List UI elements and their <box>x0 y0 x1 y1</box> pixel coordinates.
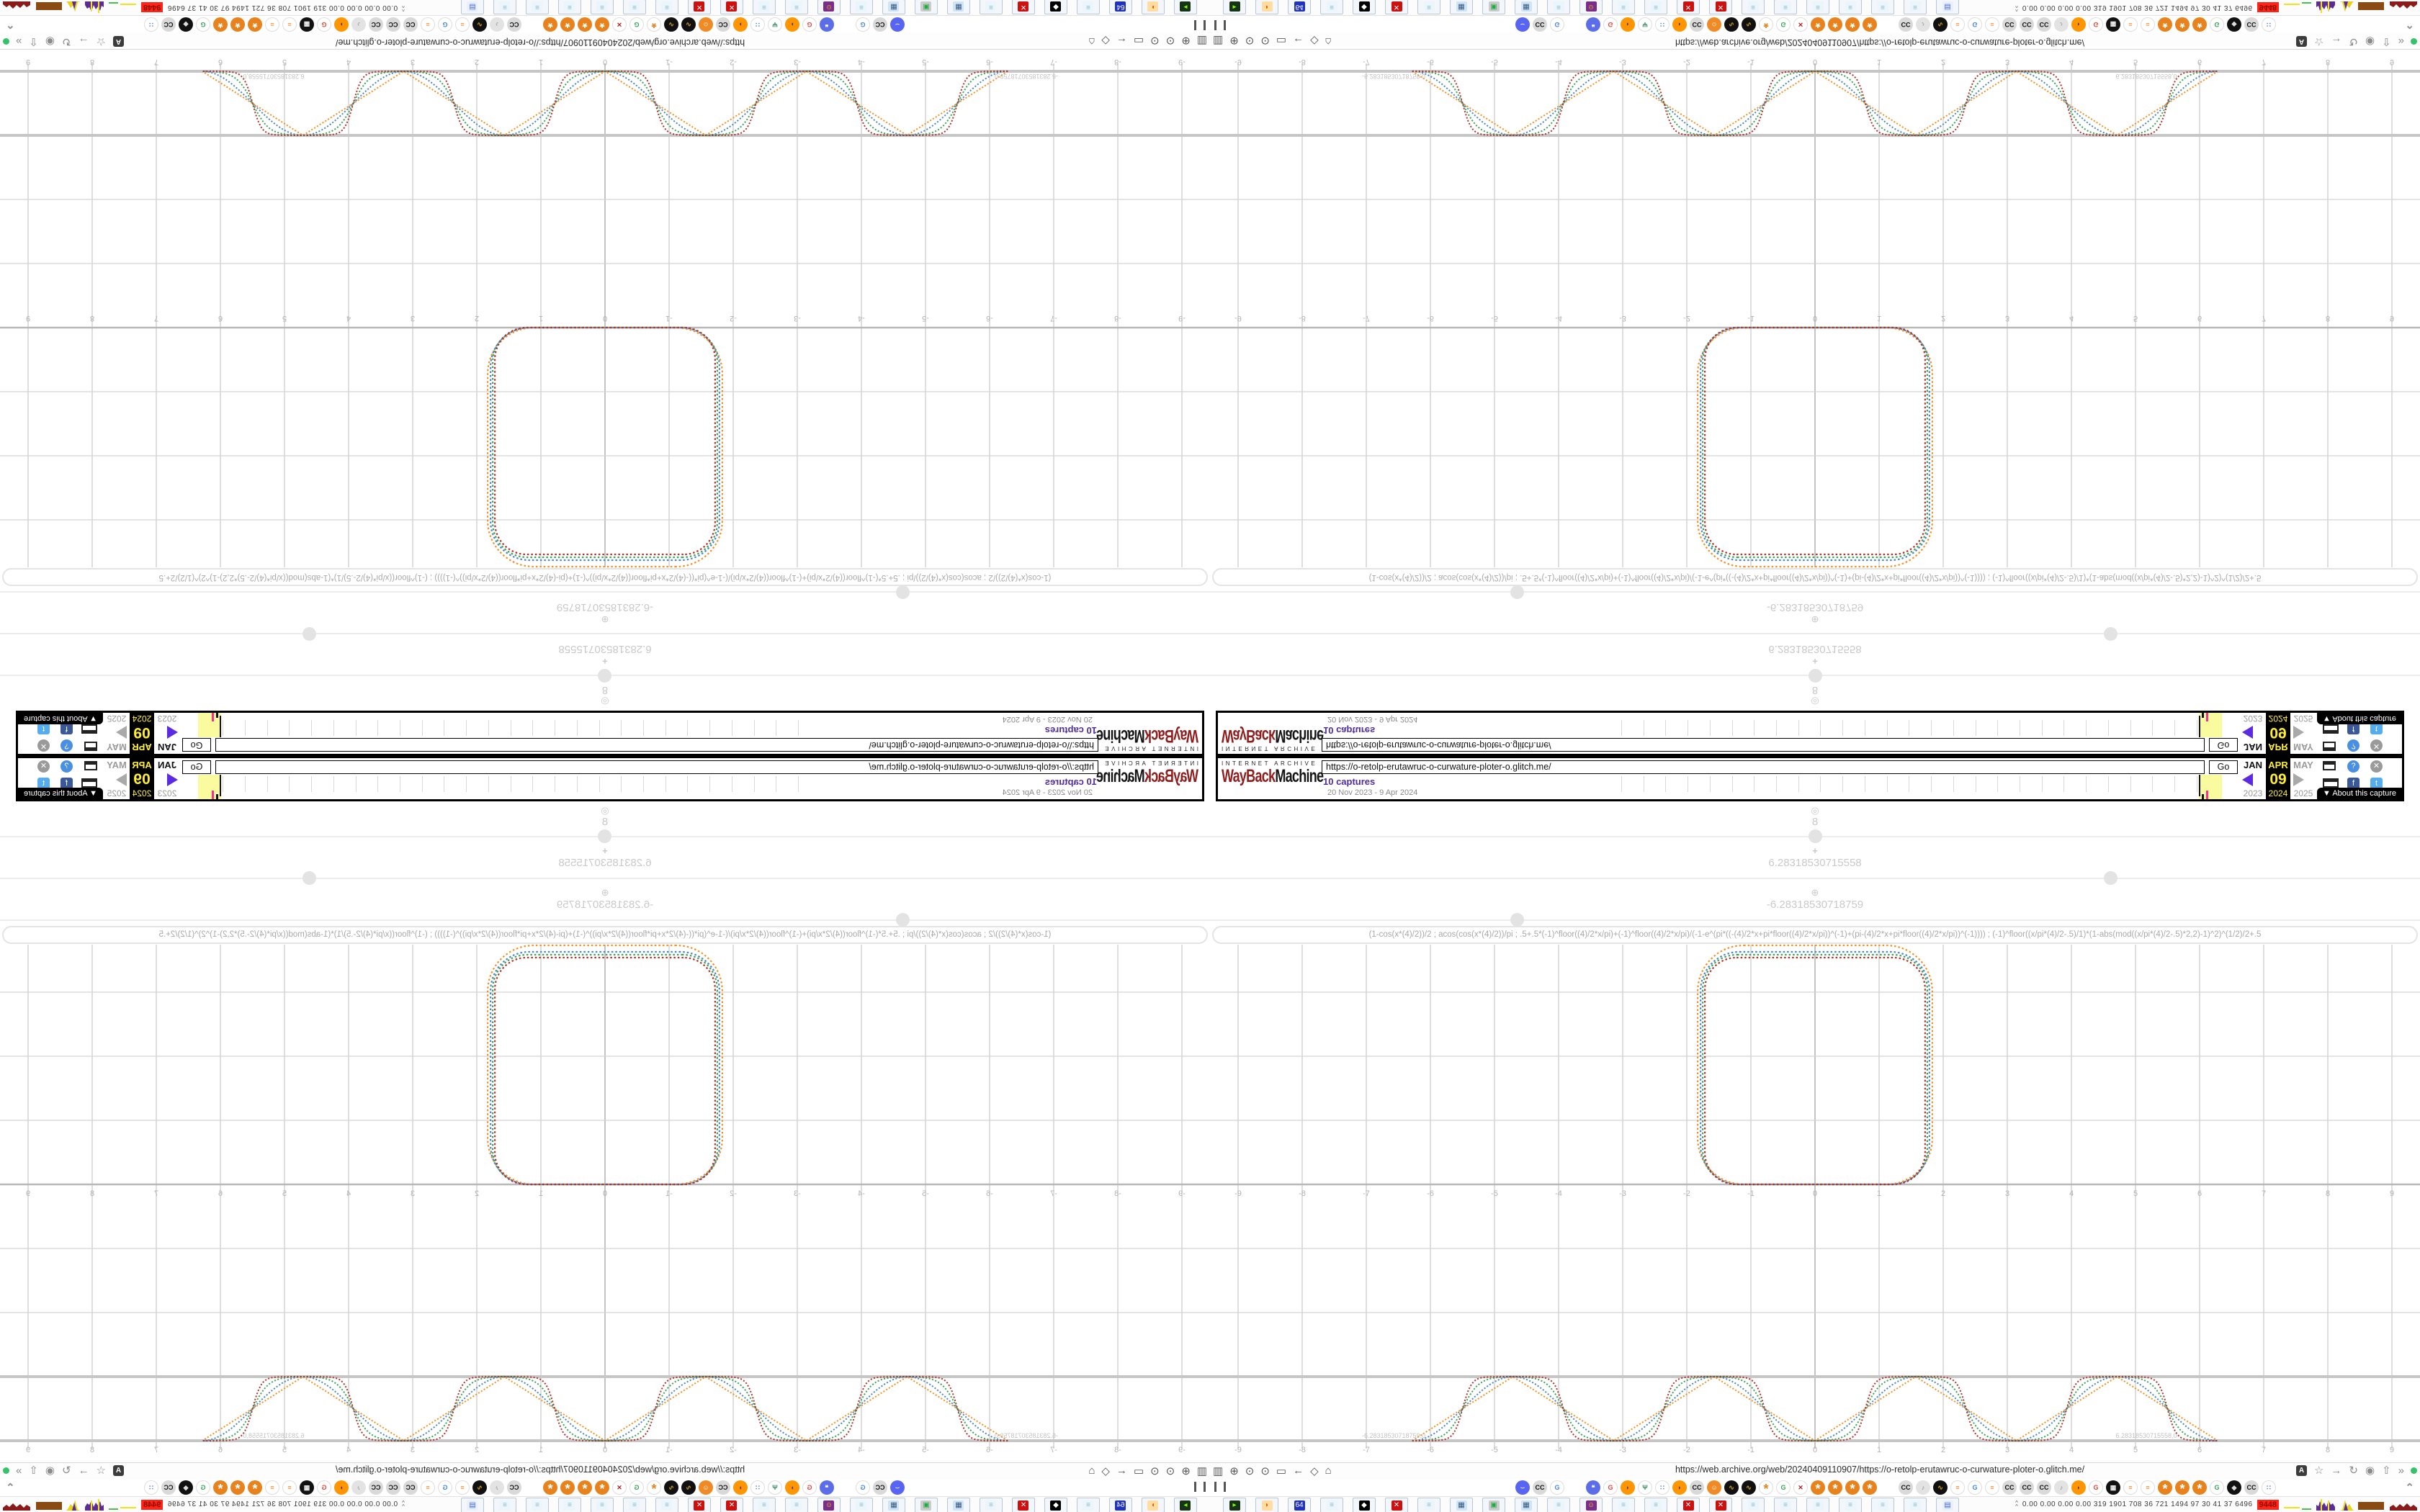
waveform-icon[interactable]: ∿ <box>1724 1480 1739 1495</box>
about-this-capture-toggle[interactable]: ▼ About this capture <box>2317 713 2402 724</box>
capture-tick[interactable] <box>289 776 290 792</box>
month-next[interactable]: MAY <box>2291 758 2316 772</box>
notepad-app[interactable]: ≡ <box>850 1498 873 1512</box>
dots-icon[interactable]: ∷ <box>1655 1480 1670 1495</box>
slider-thumb-n[interactable] <box>598 829 611 843</box>
red-gear-app[interactable]: ✕ <box>1677 1498 1700 1512</box>
capture-tick[interactable] <box>1688 720 1688 736</box>
capture-tick[interactable] <box>2042 720 2043 736</box>
notepad-app[interactable]: ≡ <box>1742 0 1765 14</box>
spider-icon[interactable]: ◆ <box>179 1480 193 1495</box>
globe-icon[interactable]: ⊕ <box>1181 1464 1191 1477</box>
cc-icon[interactable]: CC <box>507 17 521 32</box>
red-flower-icon[interactable]: ✕ <box>612 1480 627 1495</box>
capture-tick[interactable] <box>1865 776 1865 792</box>
red-gear-app[interactable]: ✕ <box>720 1498 743 1512</box>
floppy64-app[interactable]: 64 <box>1109 1498 1132 1512</box>
cc-icon[interactable]: CC <box>403 17 418 32</box>
captures-link[interactable]: 10 captures <box>1045 776 1097 787</box>
capture-tick[interactable] <box>1621 720 1622 736</box>
red-gear-app[interactable]: ✕ <box>688 0 711 14</box>
share-icon[interactable]: ⇧ <box>29 35 38 48</box>
capture-tick[interactable] <box>732 776 732 792</box>
collapse-chevron-icon[interactable]: ⌃ <box>6 1481 15 1494</box>
google-icon[interactable]: G <box>438 1480 452 1495</box>
cc-icon[interactable]: CC <box>161 17 176 32</box>
gear-sun-icon[interactable]: * <box>230 17 245 32</box>
camera-grid-icon[interactable]: ▦ <box>300 17 314 32</box>
notepad-app[interactable]: ≡ <box>623 0 646 14</box>
slider-track-xmax[interactable] <box>0 878 1210 879</box>
stackoverflow-icon[interactable]: ≡ <box>421 17 435 32</box>
screenshot-icon[interactable] <box>2323 724 2339 734</box>
gear-sun-icon[interactable]: * <box>213 1480 228 1495</box>
month-prev[interactable]: JAN <box>2241 758 2265 772</box>
next-capture-arrow[interactable] <box>2293 726 2304 739</box>
bookmark-star-icon[interactable]: ☆ <box>2314 1464 2323 1477</box>
shield-icon[interactable]: ◇ <box>1101 35 1110 48</box>
gear-sun-icon[interactable]: * <box>2192 17 2207 32</box>
go-button[interactable]: Go <box>182 760 211 774</box>
slider-track-xmax[interactable] <box>0 633 1210 634</box>
firefox-app[interactable]: ◗ <box>1142 1498 1165 1512</box>
stackoverflow-icon[interactable]: ≡ <box>455 17 470 32</box>
capture-tick[interactable] <box>577 720 578 736</box>
dots-icon[interactable]: ∷ <box>144 17 158 32</box>
waveform-icon[interactable]: ∿ <box>1742 17 1756 32</box>
monkey-app[interactable]: ☺ <box>1579 1498 1603 1512</box>
year-current[interactable]: 2024 <box>130 713 154 724</box>
gear-sun-icon[interactable]: * <box>578 1480 592 1495</box>
capture-timeline[interactable] <box>223 713 799 736</box>
waveform-icon[interactable]: ∿ <box>472 17 487 32</box>
capture-tick[interactable] <box>1953 776 1954 792</box>
calculator-app[interactable]: ▦ <box>1450 1498 1473 1512</box>
capture-tick[interactable] <box>2108 776 2109 792</box>
reload-icon[interactable]: ↻ <box>62 35 71 48</box>
red-flower-icon[interactable]: ✕ <box>612 17 627 32</box>
gauge2-icon[interactable]: ⊙ <box>1260 1464 1270 1477</box>
blackcat-app[interactable]: ◆ <box>1044 1498 1067 1512</box>
capture-tick[interactable] <box>1909 776 1909 792</box>
terminal-app[interactable]: ▸ <box>1223 1498 1246 1512</box>
wayback-logo[interactable]: INTERNET ARCHIVE WayBackMachine <box>1099 760 1198 799</box>
capture-tick[interactable] <box>1887 776 1888 792</box>
red-gear-app[interactable]: ✕ <box>1012 1498 1035 1512</box>
capture-tick[interactable] <box>1953 720 1954 736</box>
capture-tick[interactable] <box>466 720 467 736</box>
docwindow-app[interactable]: ▤ <box>461 1498 484 1512</box>
gauge2-icon[interactable]: ⊙ <box>1150 35 1160 48</box>
google-icon[interactable]: G <box>2210 17 2224 32</box>
capture-timeline-highlight[interactable] <box>198 713 221 737</box>
extension-dot-icon[interactable] <box>3 1467 9 1474</box>
capture-tick[interactable] <box>1976 776 1976 792</box>
next-capture-arrow[interactable] <box>2293 773 2304 786</box>
dots-icon[interactable]: ∷ <box>1655 17 1670 32</box>
muted-speaker-icon[interactable]: ♪ <box>351 1480 366 1495</box>
red-flower-icon[interactable]: ✕ <box>1793 17 1808 32</box>
capture-tick[interactable] <box>2130 720 2131 736</box>
globe2-icon[interactable]: ◉ <box>45 1464 55 1477</box>
xmin-value[interactable]: -6.28318530718759 <box>0 899 1210 911</box>
slider-thumb-xmin[interactable] <box>896 913 910 927</box>
extension-dot-icon[interactable] <box>2411 38 2417 45</box>
back-arrow-icon[interactable]: ← <box>1293 1464 1304 1477</box>
red-gear-app[interactable]: ✕ <box>1385 0 1408 14</box>
cc-icon[interactable]: CC <box>369 1480 383 1495</box>
capture-tick[interactable] <box>776 720 776 736</box>
capture-tick[interactable] <box>2042 776 2043 792</box>
capture-tick[interactable] <box>1798 720 1799 736</box>
cc-icon[interactable]: CC <box>716 17 730 32</box>
notepad-app[interactable]: ≡ <box>1806 1498 1829 1512</box>
capture-tick[interactable] <box>1865 720 1865 736</box>
stackoverflow-icon[interactable]: ≡ <box>265 1480 279 1495</box>
trash-icon[interactable]: ▥ <box>1213 1464 1223 1477</box>
muted-speaker-icon[interactable]: ♪ <box>2054 1480 2069 1495</box>
capture-tick[interactable] <box>466 776 467 792</box>
cc-icon[interactable]: CC <box>2020 1480 2034 1495</box>
gear-sun-icon[interactable]: * <box>1759 1480 1773 1495</box>
firefox-app[interactable]: ◗ <box>1142 0 1165 14</box>
notepad-app[interactable]: ≡ <box>1904 0 1927 14</box>
gauge-icon[interactable]: ⊙ <box>1245 35 1255 48</box>
google-icon[interactable]: G <box>196 17 210 32</box>
capture-tick[interactable] <box>511 776 511 792</box>
capture-tick[interactable] <box>1732 720 1733 736</box>
firefox-icon[interactable]: ◗ <box>1672 17 1687 32</box>
google-icon[interactable]: G <box>629 1480 644 1495</box>
bookmark-star-icon[interactable]: ☆ <box>97 35 106 48</box>
notepad-app[interactable]: ≡ <box>1774 0 1797 14</box>
collapse-chevron-icon[interactable]: ⌃ <box>2405 1481 2414 1494</box>
firefox-icon[interactable]: ◗ <box>1621 1480 1635 1495</box>
discord-icon[interactable]: ⌣ <box>1515 17 1530 32</box>
capture-tick[interactable] <box>2086 720 2087 736</box>
overflow-chevrons-icon[interactable]: » <box>2398 36 2404 48</box>
capture-tick[interactable] <box>2130 776 2131 792</box>
dots-icon[interactable]: ∷ <box>2262 1480 2276 1495</box>
notepad-app[interactable]: ≡ <box>655 0 678 14</box>
capture-timeline-highlight[interactable] <box>2199 775 2222 799</box>
google-icon[interactable]: G <box>1776 1480 1791 1495</box>
gear-sun-icon[interactable]: * <box>1811 1480 1825 1495</box>
cc-icon[interactable]: CC <box>2002 17 2017 32</box>
google-icon[interactable]: G <box>1968 17 1982 32</box>
google-icon[interactable]: G <box>802 17 817 32</box>
folder-icon[interactable]: ▭ <box>1134 35 1144 48</box>
capture-tick[interactable] <box>1754 776 1754 792</box>
notepad-app[interactable]: ≡ <box>655 1498 678 1512</box>
capture-tick[interactable] <box>643 720 644 736</box>
notepad-app[interactable]: ≡ <box>1839 1498 1862 1512</box>
capture-tick[interactable] <box>311 720 312 736</box>
share-icon[interactable]: ⇧ <box>2382 35 2391 48</box>
month-next[interactable]: MAY <box>2291 740 2316 754</box>
capture-tick[interactable] <box>643 776 644 792</box>
firefox-icon[interactable]: ◗ <box>1621 17 1635 32</box>
capture-tick[interactable] <box>2063 720 2064 736</box>
slider-thumb-n[interactable] <box>1809 669 1822 683</box>
knob-icon[interactable]: ◎ <box>0 805 1210 816</box>
gear-sun-icon[interactable]: * <box>1845 1480 1860 1495</box>
capture-tick[interactable] <box>488 720 489 736</box>
capture-tick[interactable] <box>732 720 732 736</box>
trash-icon[interactable]: ▥ <box>1197 1464 1207 1477</box>
cc-icon[interactable]: CC <box>716 1480 730 1495</box>
clown-icon[interactable]: ☺ <box>699 1480 713 1495</box>
slider-thumb-xmin[interactable] <box>896 585 910 599</box>
camera-grid-icon[interactable]: ▦ <box>300 1480 314 1495</box>
firefox-icon[interactable]: ◗ <box>733 1480 748 1495</box>
capture-timeline-highlight[interactable] <box>198 775 221 799</box>
wayback-url-input[interactable]: https://o-retolp-erutawruc-o-curwature-p… <box>215 760 1098 774</box>
bookmark-star-icon[interactable]: ☆ <box>97 1464 106 1477</box>
gear-sun-icon[interactable]: * <box>543 1480 557 1495</box>
folder-icon[interactable]: ▭ <box>1276 1464 1286 1477</box>
capture-tick[interactable] <box>444 776 445 792</box>
capture-tick[interactable] <box>665 776 666 792</box>
move-icon[interactable]: + <box>0 656 1210 667</box>
red-gear-app[interactable]: ✕ <box>1385 1498 1408 1512</box>
capture-day[interactable]: 09 <box>2266 770 2290 789</box>
notepad-app[interactable]: ≡ <box>1077 0 1100 14</box>
firefox-icon[interactable]: ◗ <box>334 17 349 32</box>
slider-track-xmin[interactable] <box>0 919 1210 921</box>
muted-speaker-icon[interactable]: ♪ <box>490 17 504 32</box>
tray-chevron-icon[interactable]: ^^ <box>2015 4 2018 12</box>
firefox-icon[interactable]: ◗ <box>785 17 799 32</box>
collapse-chevron-icon[interactable]: ⌃ <box>2405 18 2414 31</box>
red-gear-app[interactable]: ✕ <box>720 0 743 14</box>
notepad-app[interactable]: ≡ <box>785 0 808 14</box>
google-icon[interactable]: G <box>802 1480 817 1495</box>
notepad-app[interactable]: ≡ <box>591 1498 614 1512</box>
formula-input[interactable]: (1-cos(x*(4)/2))/2 ; acos(cos(x*(4)/2))/… <box>1212 926 2418 944</box>
cc-icon[interactable]: CC <box>2037 17 2051 32</box>
month-current[interactable]: APR <box>130 740 154 754</box>
param-n-value[interactable]: 8 <box>0 684 1210 696</box>
waveform-icon[interactable]: ∿ <box>1933 1480 1948 1495</box>
capture-tick[interactable] <box>1798 776 1799 792</box>
capture-tick[interactable] <box>2174 720 2175 736</box>
capture-tick[interactable] <box>1688 776 1688 792</box>
notepad-app[interactable]: ≡ <box>526 0 549 14</box>
close-banner-icon[interactable]: ✕ <box>37 739 50 752</box>
globe-icon[interactable]: ⊕ <box>1229 35 1239 48</box>
lock-icon[interactable]: ⌂ <box>1325 1464 1332 1477</box>
address-bar[interactable]: https://web.archive.org/web/202404091109… <box>1520 37 2240 48</box>
month-prev[interactable]: JAN <box>2241 740 2265 754</box>
firefox-icon[interactable]: ◗ <box>334 1480 349 1495</box>
year-prev[interactable]: 2023 <box>155 788 179 799</box>
terminal-app[interactable]: ▸ <box>1223 0 1246 14</box>
formula-input[interactable]: (1-cos(x*(4)/2))/2 ; acos(cos(x*(4)/2))/… <box>1212 568 2418 586</box>
capture-tick[interactable] <box>2086 776 2087 792</box>
gear-sun-icon[interactable]: * <box>1845 17 1860 32</box>
firefox-icon[interactable]: ◗ <box>785 1480 799 1495</box>
waveform-icon[interactable]: ∿ <box>664 1480 678 1495</box>
gear-sun-icon[interactable]: * <box>595 1480 609 1495</box>
firefox-icon[interactable]: ◗ <box>1672 1480 1687 1495</box>
notepad-app[interactable]: ≡ <box>1417 1498 1440 1512</box>
capture-tick[interactable] <box>776 776 776 792</box>
capture-tick[interactable] <box>2020 720 2020 736</box>
forward-arrow-icon[interactable]: → <box>2331 36 2341 48</box>
gauge-icon[interactable]: ⊙ <box>1166 35 1175 48</box>
capture-tick[interactable] <box>687 720 688 736</box>
address-bar[interactable]: https://web.archive.org/web/202404091109… <box>1520 1464 2240 1475</box>
stackoverflow-icon[interactable]: ≡ <box>1950 17 1965 32</box>
translate-icon[interactable]: A <box>113 1465 124 1476</box>
capture-tick[interactable] <box>400 776 400 792</box>
muted-speaker-icon[interactable]: ♪ <box>1916 17 1930 32</box>
shift-icon[interactable]: ⊕ <box>1210 613 2420 625</box>
monkey-app[interactable]: ☺ <box>817 1498 841 1512</box>
google-icon[interactable]: G <box>196 1480 210 1495</box>
capture-tick[interactable] <box>1842 776 1843 792</box>
captures-link[interactable]: 10 captures <box>1323 776 1375 787</box>
gear-sun-icon[interactable]: * <box>213 17 228 32</box>
capture-tick[interactable] <box>1665 720 1666 736</box>
collapse-chevron-icon[interactable]: ⌃ <box>6 18 15 31</box>
notepad-app[interactable]: ≡ <box>1871 0 1894 14</box>
capture-tick[interactable] <box>798 776 799 792</box>
notepad-app[interactable]: ≡ <box>785 1498 808 1512</box>
notepad-app[interactable]: ≡ <box>1774 1498 1797 1512</box>
red-gear-app[interactable]: ✕ <box>1012 0 1035 14</box>
year-next[interactable]: 2025 <box>104 788 129 799</box>
back-arrow-icon[interactable]: ← <box>1116 35 1127 48</box>
google-icon[interactable]: G <box>1550 1480 1564 1495</box>
floppy64-app[interactable]: 64 <box>1109 0 1132 14</box>
capture-tick[interactable] <box>798 720 799 736</box>
stackoverflow-icon[interactable]: ≡ <box>455 1480 470 1495</box>
stackoverflow-icon[interactable]: ≡ <box>2141 1480 2155 1495</box>
xmax-value[interactable]: 6.28318530715558 <box>0 857 1210 869</box>
prev-capture-arrow[interactable] <box>2242 726 2253 739</box>
dots-icon[interactable]: ∷ <box>144 1480 158 1495</box>
capture-tick[interactable] <box>356 776 357 792</box>
capture-tick[interactable] <box>1776 776 1777 792</box>
capture-tick[interactable] <box>555 776 555 792</box>
globe2-icon[interactable]: ◉ <box>2365 1464 2375 1477</box>
next-capture-arrow[interactable] <box>116 773 127 786</box>
cc-icon[interactable]: CC <box>403 1480 418 1495</box>
capture-tick[interactable] <box>1887 720 1888 736</box>
extension-dot-icon[interactable] <box>3 38 9 45</box>
xmax-value[interactable]: 6.28318530715558 <box>0 643 1210 655</box>
cc-icon[interactable]: CC <box>873 1480 887 1495</box>
back-arrow-icon[interactable]: ← <box>1116 1464 1127 1477</box>
notepad-app[interactable]: ≡ <box>980 1498 1003 1512</box>
gauge2-icon[interactable]: ⊙ <box>1150 1464 1160 1477</box>
year-current[interactable]: 2024 <box>2266 788 2290 799</box>
captures-link[interactable]: 10 captures <box>1045 725 1097 736</box>
cc-icon[interactable]: CC <box>386 1480 400 1495</box>
notepad-app[interactable]: ≡ <box>1077 1498 1100 1512</box>
google-icon[interactable]: G <box>2210 1480 2224 1495</box>
capture-timeline[interactable] <box>1621 713 2197 736</box>
google-icon[interactable]: G <box>856 17 870 32</box>
wayback-logo[interactable]: INTERNET ARCHIVE WayBackMachine <box>1222 713 1321 752</box>
folder-icon[interactable]: ▭ <box>1134 1464 1144 1477</box>
year-prev[interactable]: 2023 <box>155 713 179 724</box>
reload-icon[interactable]: ↻ <box>2349 1464 2358 1477</box>
capture-tick[interactable] <box>754 720 755 736</box>
waveform-icon[interactable]: ∿ <box>1724 17 1739 32</box>
help-icon[interactable]: ? <box>60 739 73 752</box>
prev-capture-arrow[interactable] <box>167 773 178 786</box>
notepad-app[interactable]: ≡ <box>526 1498 549 1512</box>
lock-icon[interactable]: ⌂ <box>1088 35 1095 48</box>
share-icon[interactable]: ⇧ <box>29 1464 38 1477</box>
waveform-icon[interactable]: ∿ <box>1742 1480 1756 1495</box>
capture-tick[interactable] <box>2063 776 2064 792</box>
xmin-value[interactable]: -6.28318530718759 <box>1210 899 2420 911</box>
capture-tick[interactable] <box>333 720 334 736</box>
translate-icon[interactable]: A <box>2296 1465 2307 1476</box>
gear-sun-icon[interactable]: * <box>2158 17 2172 32</box>
year-next[interactable]: 2025 <box>2291 788 2316 799</box>
capture-tick[interactable] <box>377 776 378 792</box>
clown-icon[interactable]: ☺ <box>1707 1480 1721 1495</box>
google-icon[interactable]: G <box>629 17 644 32</box>
monitor-app[interactable]: ▣ <box>1482 1498 1505 1512</box>
trash-icon[interactable]: ▥ <box>1213 35 1223 48</box>
gear-sun-icon[interactable]: * <box>595 17 609 32</box>
param-n-value[interactable]: 8 <box>1210 684 2420 696</box>
google-icon[interactable]: G <box>1968 1480 1982 1495</box>
notepad-app[interactable]: ≡ <box>623 1498 646 1512</box>
gauge-icon[interactable]: ⊙ <box>1166 1464 1175 1477</box>
chat-icon[interactable]: ❝ <box>820 17 834 32</box>
tray-chevron-icon[interactable]: ^^ <box>402 1501 405 1508</box>
blackcat-app[interactable]: ◆ <box>1044 0 1067 14</box>
terminal-app[interactable]: ▸ <box>1174 1498 1197 1512</box>
cc-icon[interactable]: CC <box>1899 17 1913 32</box>
docwindow-app[interactable]: ▤ <box>1936 1498 1959 1512</box>
shield-icon[interactable]: ◇ <box>1310 35 1319 48</box>
globe-icon[interactable]: ⊕ <box>1229 1464 1239 1477</box>
capture-tick[interactable] <box>1842 720 1843 736</box>
capture-tick[interactable] <box>1621 776 1622 792</box>
lock-icon[interactable]: ⌂ <box>1088 1464 1095 1477</box>
capture-tick[interactable] <box>665 720 666 736</box>
reload-icon[interactable]: ↻ <box>2349 35 2358 48</box>
waveform-icon[interactable]: ∿ <box>664 17 678 32</box>
slider-thumb-xmax[interactable] <box>2104 627 2117 641</box>
capture-day[interactable]: 09 <box>130 723 154 742</box>
knob-icon[interactable]: ◎ <box>1210 805 2420 816</box>
capture-tick[interactable] <box>1665 776 1666 792</box>
cc-icon[interactable]: CC <box>1690 1480 1704 1495</box>
help-icon[interactable]: ? <box>60 760 73 773</box>
tray-chevron-icon[interactable]: ^^ <box>2015 1501 2018 1508</box>
capture-timeline[interactable] <box>223 776 799 799</box>
capture-tick[interactable] <box>599 776 600 792</box>
capture-tick[interactable] <box>511 720 511 736</box>
capture-tick[interactable] <box>289 720 290 736</box>
close-banner-icon[interactable]: ✕ <box>2370 760 2383 773</box>
capture-tick[interactable] <box>1820 776 1821 792</box>
forward-arrow-icon[interactable]: → <box>79 1464 89 1477</box>
gear-sun-icon[interactable]: * <box>2158 1480 2172 1495</box>
globe2-icon[interactable]: ◉ <box>45 35 55 48</box>
stackoverflow-icon[interactable]: ≡ <box>282 17 297 32</box>
gear-sun-icon[interactable]: * <box>1811 17 1825 32</box>
